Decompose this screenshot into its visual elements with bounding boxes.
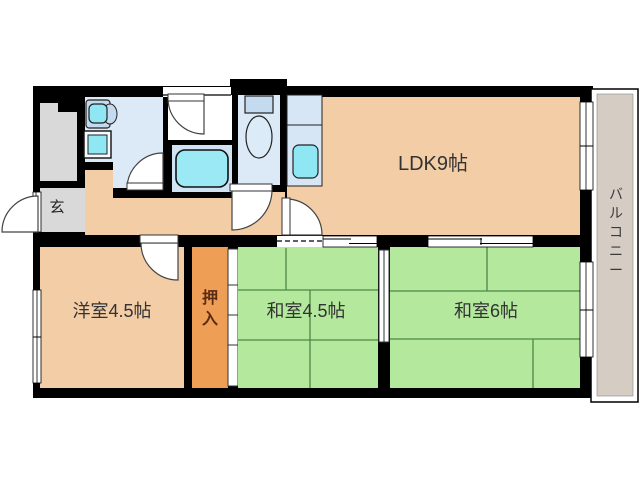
washroom-corner-wall [85, 162, 113, 170]
ldk-label: LDK9帖 [398, 152, 468, 175]
genkan-label: 玄 [49, 199, 64, 216]
washitsu6-label: 和室6帖 [454, 301, 518, 321]
toilet-tank [245, 96, 273, 113]
toilet-bowl [246, 116, 272, 158]
hallway-floor-left [85, 170, 113, 200]
bath-entry-door-leaf [168, 94, 204, 101]
ldk-door-leaf [282, 198, 290, 235]
floor-plan-page: LDK9帖玄洋室4.5帖押入和室4.5帖和室6帖バルコニー [0, 0, 640, 480]
ldk-hall-open-boundary [277, 236, 323, 247]
vanity-basin [89, 104, 107, 123]
stairwell-area [40, 103, 77, 181]
youshitsu-door-leaf [140, 235, 178, 243]
floor-plan-svg: LDK9帖玄洋室4.5帖押入和室4.5帖和室6帖バルコニー [0, 0, 640, 480]
washer-pan-inner [88, 135, 107, 154]
stairwell-step-notch [58, 103, 77, 112]
kitchen-sink [293, 145, 318, 178]
toilet-top-wall-bump [230, 79, 287, 91]
washroom-door-leaf [127, 183, 163, 190]
bathtub [176, 150, 228, 187]
washitsu45-label: 和室4.5帖 [266, 301, 345, 321]
ldk-washitsu45-sliding-door [323, 236, 377, 247]
youshitsu-label: 洋室4.5帖 [72, 301, 151, 321]
balcony-label: バルコニー [609, 186, 623, 278]
toilet-door-leaf [230, 184, 272, 191]
entrance-door-swing [2, 196, 38, 232]
oshiire-fusuma [228, 249, 238, 386]
